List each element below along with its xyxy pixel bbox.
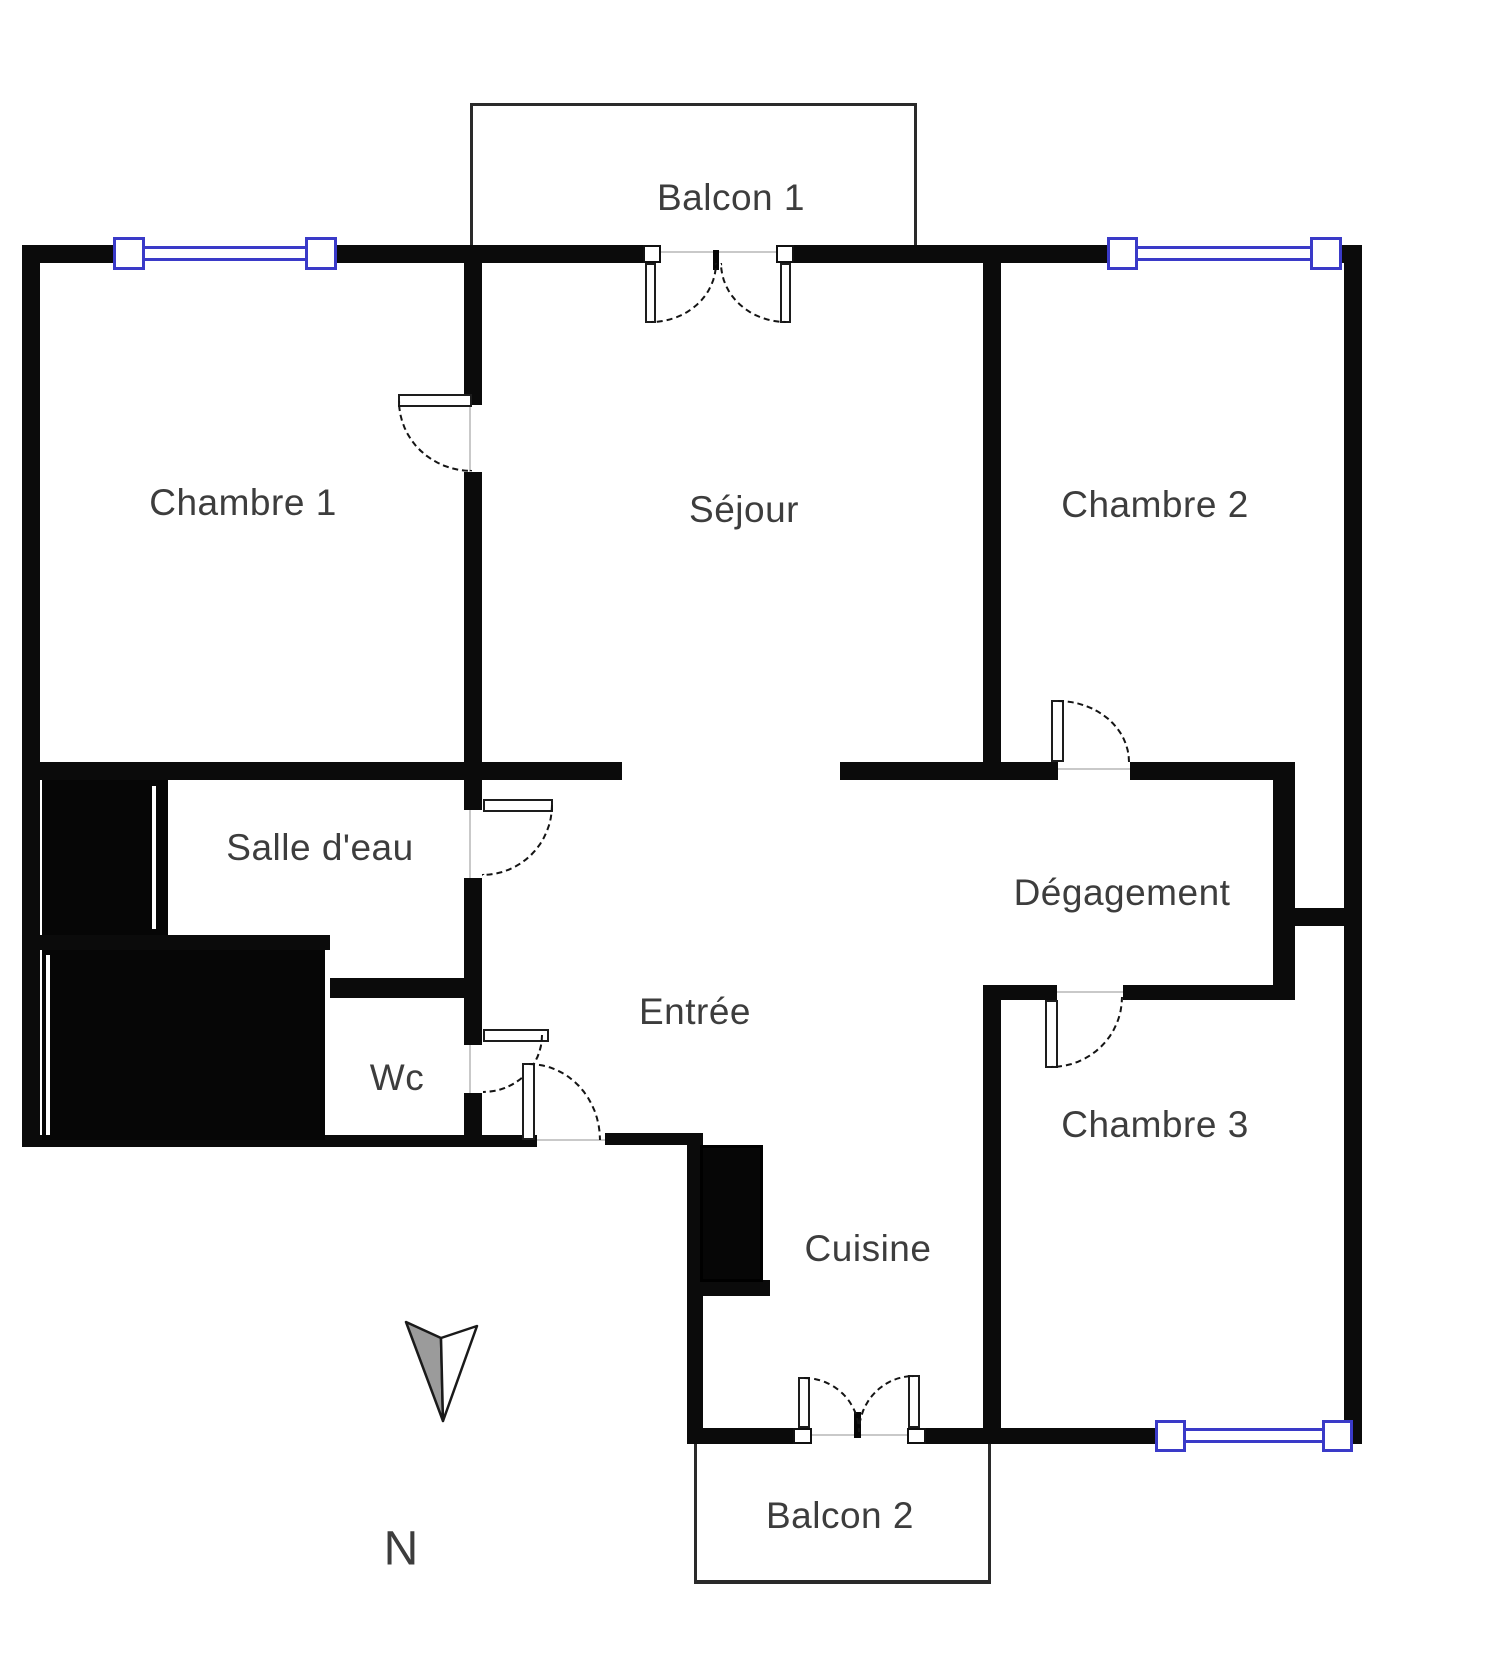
wall-cuisine-stub xyxy=(697,1280,770,1296)
window1-jamb-left xyxy=(113,237,145,270)
entrance-door-arc xyxy=(529,1063,601,1140)
balcony1-outline-right xyxy=(914,103,917,245)
wall-outer-right xyxy=(1344,245,1362,1444)
chambre3-door-arc xyxy=(1051,997,1123,1068)
closet-fixture-2-slit xyxy=(46,955,50,1135)
label-chambre1: Chambre 1 xyxy=(149,482,337,524)
kitchen-fixture xyxy=(700,1145,763,1282)
balcony1-door-jamb-right xyxy=(776,245,794,263)
wall-mid-left xyxy=(22,762,622,780)
balcony1-door-arc-left xyxy=(651,263,717,323)
label-wc: Wc xyxy=(370,1057,424,1099)
label-entree: Entrée xyxy=(639,991,751,1033)
wall-mid-right xyxy=(1130,762,1283,780)
wall-divider-a4 xyxy=(464,1093,482,1147)
balcony2-outline-right xyxy=(988,1444,991,1584)
closet-fixture-1 xyxy=(42,780,168,935)
wall-ch2-ch3 xyxy=(1295,908,1362,926)
window2-jamb-left xyxy=(1107,237,1138,270)
label-balcon2: Balcon 2 xyxy=(766,1495,914,1537)
window1-jamb-right xyxy=(305,237,337,270)
north-label: N xyxy=(384,1522,419,1577)
wall-degagement-bottom-r xyxy=(1123,985,1295,1000)
label-chambre2: Chambre 2 xyxy=(1061,484,1249,526)
window2-gap xyxy=(1138,240,1310,268)
window1-gap xyxy=(145,240,305,268)
wall-salledeau-bottom xyxy=(22,935,330,950)
wall-divider-a2 xyxy=(464,472,482,810)
chambre1-door-arc xyxy=(398,401,472,472)
label-salledeau: Salle d'eau xyxy=(226,827,413,869)
label-balcon1: Balcon 1 xyxy=(657,177,805,219)
window3-line-b xyxy=(1186,1440,1322,1443)
chambre3-door-threshold xyxy=(1057,991,1123,993)
salledeau-door-threshold xyxy=(469,810,471,878)
window3-jamb-left xyxy=(1155,1420,1186,1452)
window2-jamb-right xyxy=(1310,237,1342,270)
window1-line-a xyxy=(145,246,305,249)
balcony1-door-jamb-left xyxy=(643,245,661,263)
wall-chambre3-bottom-l xyxy=(1001,1428,1155,1444)
label-cuisine: Cuisine xyxy=(805,1228,932,1270)
floor-plan: Balcon 1 Chambre 1 Séjour Chambre 2 Sall… xyxy=(0,0,1500,1655)
wc-door-threshold xyxy=(469,1045,471,1093)
wall-divider-a1 xyxy=(464,263,482,405)
window3-line-a xyxy=(1186,1428,1322,1431)
wall-mid-center xyxy=(840,762,1058,780)
window1-line-b xyxy=(145,258,305,261)
wall-divider-b xyxy=(983,263,1001,762)
wall-cuisine-bottom-r xyxy=(926,1428,1001,1444)
window2-line-b xyxy=(1138,258,1310,261)
balcony2-outline-left xyxy=(694,1444,697,1584)
window3-jamb-right xyxy=(1322,1420,1353,1452)
closet-fixture-1-slit xyxy=(152,786,156,929)
wall-chambre3-bottom-r xyxy=(1353,1428,1362,1444)
wall-divider-a3 xyxy=(464,878,482,1045)
wall-outer-left xyxy=(22,245,40,1147)
chambre2-door-threshold xyxy=(1058,768,1130,770)
balcony2-outline-bottom xyxy=(694,1580,991,1584)
wall-cuisine-bottom-l xyxy=(687,1428,793,1444)
label-degagement: Dégagement xyxy=(1014,872,1231,914)
balcony2-door-arc-right xyxy=(858,1375,914,1432)
balcony1-outline-left xyxy=(470,103,473,245)
wall-wc-top xyxy=(330,978,482,998)
balcony1-outline-top xyxy=(470,103,917,106)
window3-gap xyxy=(1186,1423,1322,1449)
balcony2-door-arc-left xyxy=(804,1377,860,1432)
closet-fixture-2 xyxy=(42,950,325,1140)
chambre2-door-arc xyxy=(1058,700,1130,762)
balcony1-door-arc-right xyxy=(720,263,786,323)
wall-chambre3-west xyxy=(983,985,1001,1444)
label-chambre3: Chambre 3 xyxy=(1061,1104,1249,1146)
label-sejour: Séjour xyxy=(689,489,799,531)
wall-degagement-east xyxy=(1273,762,1295,1000)
window2-line-a xyxy=(1138,246,1310,249)
north-arrow-icon xyxy=(395,1315,490,1430)
salledeau-door-arc xyxy=(482,805,553,876)
